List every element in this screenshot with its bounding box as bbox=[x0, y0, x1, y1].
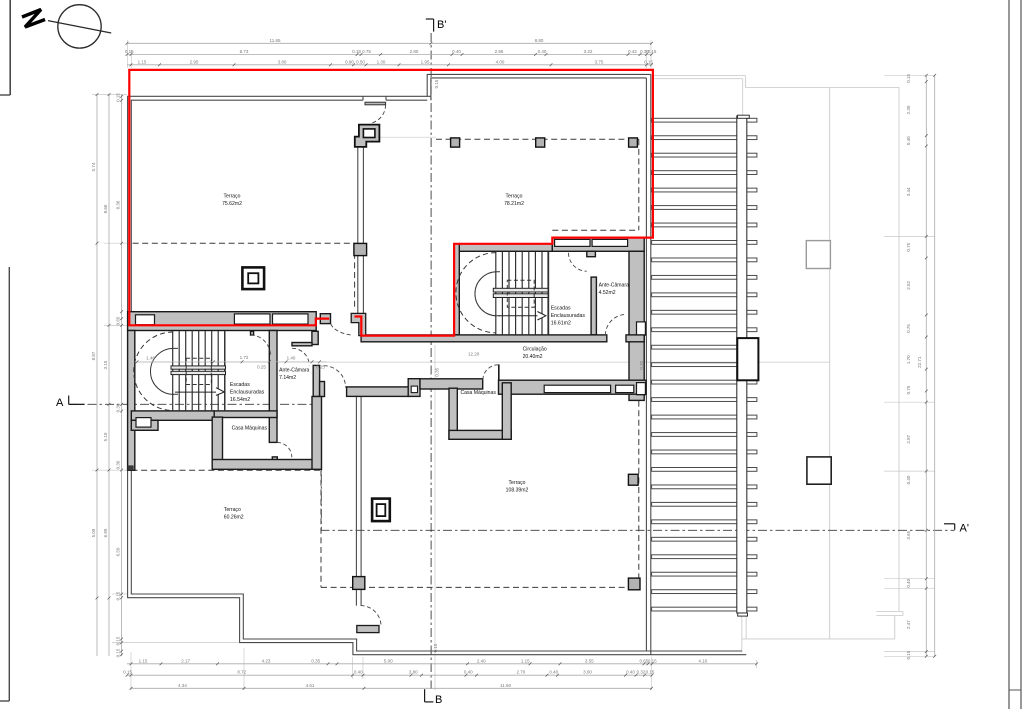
svg-text:0.40: 0.40 bbox=[906, 136, 911, 145]
svg-text:Enclausuradas: Enclausuradas bbox=[551, 313, 586, 319]
svg-text:6.50: 6.50 bbox=[116, 547, 121, 556]
svg-text:1.40: 1.40 bbox=[287, 356, 296, 361]
svg-text:3.00: 3.00 bbox=[583, 670, 592, 675]
svg-text:4.23: 4.23 bbox=[262, 658, 271, 663]
svg-text:Casa Máquinas: Casa Máquinas bbox=[232, 426, 268, 432]
svg-text:75.62m2: 75.62m2 bbox=[222, 201, 242, 207]
svg-text:0.15: 0.15 bbox=[116, 636, 121, 645]
svg-text:0.40: 0.40 bbox=[452, 49, 461, 54]
svg-text:0.30: 0.30 bbox=[639, 360, 644, 369]
svg-text:0.75: 0.75 bbox=[906, 385, 911, 394]
svg-text:11.50: 11.50 bbox=[500, 683, 511, 688]
svg-text:Terraço: Terraço bbox=[506, 193, 523, 199]
svg-text:1.95: 1.95 bbox=[421, 59, 430, 64]
svg-text:1.72: 1.72 bbox=[240, 355, 249, 360]
svg-text:8.73: 8.73 bbox=[240, 49, 249, 54]
svg-text:2.95: 2.95 bbox=[190, 59, 199, 64]
svg-text:3.75: 3.75 bbox=[595, 59, 604, 64]
svg-text:3.55: 3.55 bbox=[585, 658, 594, 663]
svg-text:2.30: 2.30 bbox=[906, 105, 911, 114]
svg-text:60.26m2: 60.26m2 bbox=[224, 515, 244, 521]
svg-text:A': A' bbox=[960, 523, 969, 535]
svg-text:0.32: 0.32 bbox=[637, 670, 646, 675]
svg-text:0.40: 0.40 bbox=[464, 670, 473, 675]
svg-text:Ante-Câmara: Ante-Câmara bbox=[279, 368, 309, 374]
svg-text:2.70: 2.70 bbox=[517, 670, 526, 675]
svg-text:0.25: 0.25 bbox=[316, 365, 325, 370]
svg-text:0.15: 0.15 bbox=[116, 591, 121, 600]
svg-text:1.30: 1.30 bbox=[377, 59, 386, 64]
svg-text:0.40: 0.40 bbox=[906, 578, 911, 587]
svg-text:8.87: 8.87 bbox=[91, 351, 96, 360]
svg-text:4.34: 4.34 bbox=[178, 683, 187, 688]
svg-text:0.15: 0.15 bbox=[434, 79, 439, 88]
svg-text:4.10: 4.10 bbox=[698, 658, 707, 663]
svg-text:8.66: 8.66 bbox=[103, 204, 108, 213]
svg-text:0.65: 0.65 bbox=[116, 316, 121, 325]
svg-text:8.36: 8.36 bbox=[116, 200, 121, 209]
svg-text:0.15: 0.15 bbox=[644, 59, 653, 64]
svg-text:0.35: 0.35 bbox=[311, 658, 320, 663]
svg-text:3.80: 3.80 bbox=[409, 670, 418, 675]
svg-text:8.80: 8.80 bbox=[535, 38, 544, 43]
svg-text:Terraço: Terraço bbox=[224, 193, 241, 199]
svg-text:0.75: 0.75 bbox=[906, 242, 911, 251]
svg-text:0.15: 0.15 bbox=[646, 670, 655, 675]
svg-text:B': B' bbox=[437, 19, 446, 31]
svg-text:1.15: 1.15 bbox=[138, 59, 147, 64]
svg-text:2.40: 2.40 bbox=[477, 658, 486, 663]
svg-text:4.61: 4.61 bbox=[306, 683, 315, 688]
svg-text:11.65: 11.65 bbox=[270, 38, 281, 43]
svg-text:0.15: 0.15 bbox=[906, 74, 911, 83]
svg-text:5.00: 5.00 bbox=[384, 658, 393, 663]
svg-text:7.14m2: 7.14m2 bbox=[279, 375, 296, 381]
svg-text:0.25: 0.25 bbox=[257, 365, 266, 370]
svg-text:0.40: 0.40 bbox=[538, 49, 547, 54]
svg-text:4.52m2: 4.52m2 bbox=[599, 290, 616, 296]
svg-text:0.42: 0.42 bbox=[628, 49, 637, 54]
svg-text:1.15: 1.15 bbox=[139, 658, 148, 663]
svg-text:Casa Máquinas: Casa Máquinas bbox=[461, 390, 497, 396]
svg-text:3.44: 3.44 bbox=[906, 187, 911, 196]
svg-text:6.89: 6.89 bbox=[103, 528, 108, 537]
svg-text:2.80: 2.80 bbox=[410, 49, 419, 54]
svg-text:22.71: 22.71 bbox=[917, 356, 922, 368]
svg-text:0.40: 0.40 bbox=[549, 670, 558, 675]
svg-text:Escadas: Escadas bbox=[551, 305, 571, 311]
svg-text:3.15: 3.15 bbox=[103, 360, 108, 369]
svg-text:0.75: 0.75 bbox=[906, 324, 911, 333]
svg-text:4.00: 4.00 bbox=[496, 59, 505, 64]
svg-text:Ante-Câmara: Ante-Câmara bbox=[599, 283, 629, 289]
svg-text:3.65: 3.65 bbox=[906, 530, 911, 539]
svg-text:0.15: 0.15 bbox=[648, 658, 657, 663]
svg-text:5.74: 5.74 bbox=[91, 162, 96, 171]
svg-text:16.54m2: 16.54m2 bbox=[230, 397, 250, 403]
svg-text:3.22: 3.22 bbox=[584, 49, 593, 54]
svg-text:0.15: 0.15 bbox=[123, 670, 132, 675]
svg-text:1.70: 1.70 bbox=[906, 355, 911, 364]
svg-text:Circulação: Circulação bbox=[523, 347, 547, 353]
svg-text:3.80: 3.80 bbox=[278, 59, 287, 64]
svg-text:1.46: 1.46 bbox=[146, 356, 155, 361]
svg-text:Enclausuradas: Enclausuradas bbox=[230, 389, 265, 395]
svg-text:0.36: 0.36 bbox=[116, 460, 121, 469]
svg-text:2.95: 2.95 bbox=[495, 49, 504, 54]
svg-text:Escadas: Escadas bbox=[230, 382, 250, 388]
svg-text:0.18: 0.18 bbox=[352, 49, 361, 54]
svg-text:78.21m2: 78.21m2 bbox=[504, 201, 524, 207]
svg-text:0.15: 0.15 bbox=[906, 650, 911, 659]
svg-text:0.40: 0.40 bbox=[354, 670, 363, 675]
svg-text:0.40: 0.40 bbox=[906, 475, 911, 484]
svg-text:16.61m2: 16.61m2 bbox=[551, 321, 571, 327]
svg-text:0.15: 0.15 bbox=[125, 49, 134, 54]
svg-text:0.90: 0.90 bbox=[345, 59, 354, 64]
svg-text:0.36: 0.36 bbox=[116, 403, 121, 412]
svg-text:5.10: 5.10 bbox=[103, 432, 108, 441]
svg-text:B: B bbox=[435, 694, 442, 706]
svg-text:20.40m2: 20.40m2 bbox=[523, 354, 543, 360]
svg-text:0.15: 0.15 bbox=[116, 648, 121, 657]
svg-text:2.87: 2.87 bbox=[906, 434, 911, 443]
svg-text:Terraço: Terraço bbox=[509, 480, 526, 486]
svg-text:0.40: 0.40 bbox=[626, 670, 635, 675]
svg-text:2.47: 2.47 bbox=[906, 620, 911, 629]
svg-text:2.52: 2.52 bbox=[906, 281, 911, 290]
svg-text:0.75: 0.75 bbox=[362, 49, 371, 54]
svg-text:108.39m2: 108.39m2 bbox=[506, 488, 529, 494]
svg-text:1.15: 1.15 bbox=[521, 658, 530, 663]
svg-text:0.15: 0.15 bbox=[433, 643, 438, 652]
svg-text:0.15: 0.15 bbox=[648, 49, 657, 54]
svg-text:12.20: 12.20 bbox=[468, 351, 480, 356]
svg-text:5.09: 5.09 bbox=[91, 528, 96, 537]
svg-text:0.35: 0.35 bbox=[435, 367, 440, 376]
svg-text:8.72: 8.72 bbox=[237, 670, 246, 675]
svg-text:A: A bbox=[56, 397, 64, 409]
svg-text:0.15: 0.15 bbox=[116, 93, 121, 102]
svg-text:2.17: 2.17 bbox=[181, 658, 190, 663]
svg-text:0.50: 0.50 bbox=[356, 59, 365, 64]
svg-text:Terraço: Terraço bbox=[224, 507, 241, 513]
